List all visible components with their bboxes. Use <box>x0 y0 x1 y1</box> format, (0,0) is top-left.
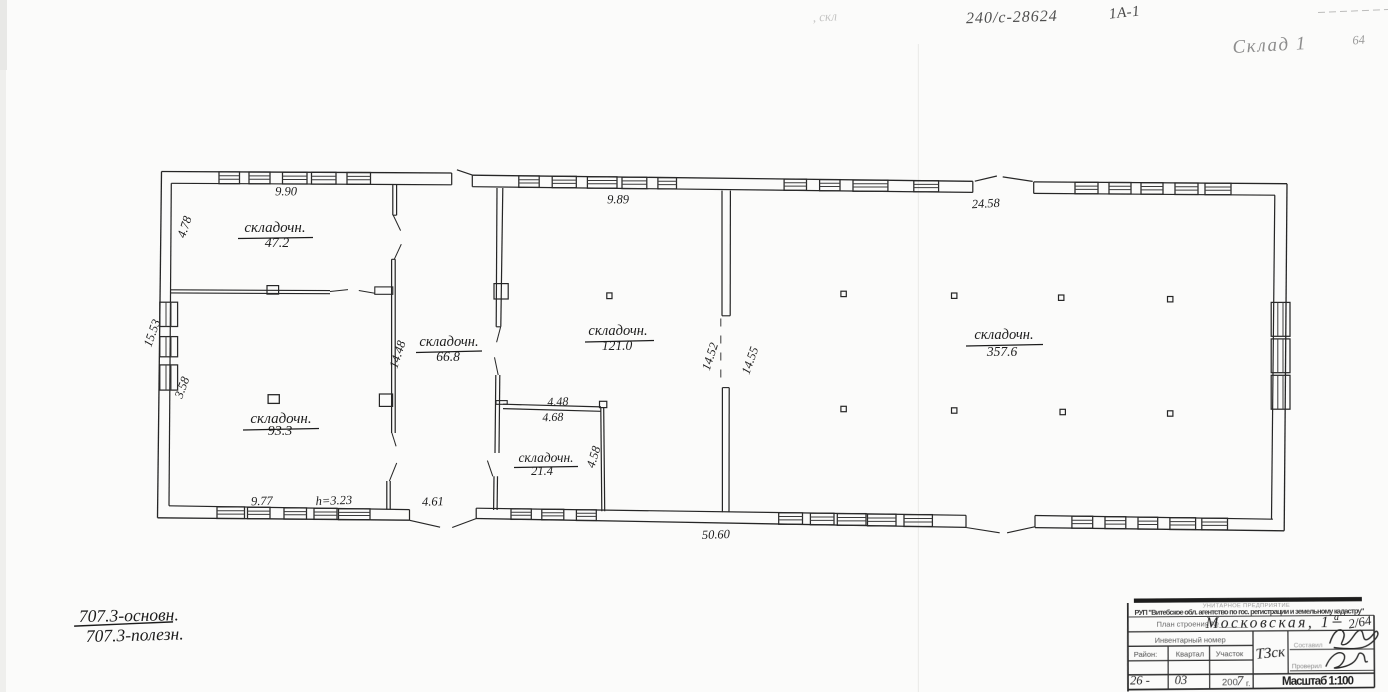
svg-text:4.48: 4.48 <box>547 394 568 409</box>
svg-text:03: 03 <box>1175 673 1188 687</box>
svg-text:складочн.: складочн. <box>974 327 1033 343</box>
svg-text:9.89: 9.89 <box>607 193 630 207</box>
svg-text:г.: г. <box>1246 678 1251 688</box>
svg-text:26 -: 26 - <box>1130 673 1150 687</box>
svg-text:Масштаб 1:100: Масштаб 1:100 <box>1282 675 1354 688</box>
svg-text:24.58: 24.58 <box>971 196 1001 211</box>
svg-text:64: 64 <box>1352 32 1366 47</box>
svg-text:1А-1: 1А-1 <box>1108 3 1141 22</box>
svg-text:47.2: 47.2 <box>265 236 290 251</box>
svg-text:Квартал: Квартал <box>1176 649 1204 658</box>
svg-text:66.8: 66.8 <box>436 349 460 364</box>
svg-text:50.60: 50.60 <box>702 527 731 542</box>
svg-text:складочн.: складочн. <box>244 220 305 236</box>
svg-text:Инвентарный номер: Инвентарный номер <box>1155 635 1226 644</box>
svg-text:Склад 1: Склад 1 <box>1232 33 1307 58</box>
svg-text:складочн.: складочн. <box>518 450 573 465</box>
svg-text:складочн.: складочн. <box>588 323 647 339</box>
svg-text:а: а <box>1334 612 1339 623</box>
svg-text:Участок: Участок <box>1216 649 1244 658</box>
svg-text:93.3: 93.3 <box>268 424 293 439</box>
svg-text:h=3.23: h=3.23 <box>315 493 352 508</box>
svg-text:9.77: 9.77 <box>251 494 274 509</box>
svg-text:Составил: Составил <box>1294 642 1323 649</box>
svg-text:4.68: 4.68 <box>542 410 563 425</box>
svg-text:707.3-полезн.: 707.3-полезн. <box>86 623 184 646</box>
svg-text:357.6: 357.6 <box>986 344 1018 359</box>
svg-text:21.4: 21.4 <box>531 464 553 478</box>
svg-text:240/с-28624: 240/с-28624 <box>966 8 1058 27</box>
svg-text:Московская, 1: Московская, 1 <box>1204 614 1329 632</box>
svg-text:121.0: 121.0 <box>602 338 633 353</box>
svg-text:200: 200 <box>1222 677 1238 688</box>
svg-text:4.61: 4.61 <box>422 494 444 509</box>
svg-text:9.90: 9.90 <box>275 185 298 199</box>
svg-text:складочн.: складочн. <box>419 334 478 350</box>
svg-text:ТЗск: ТЗск <box>1255 644 1287 663</box>
svg-text:Проверил: Проверил <box>1292 663 1322 670</box>
svg-text:, скл: , скл <box>812 8 837 24</box>
svg-text:Район:: Район: <box>1134 650 1158 659</box>
